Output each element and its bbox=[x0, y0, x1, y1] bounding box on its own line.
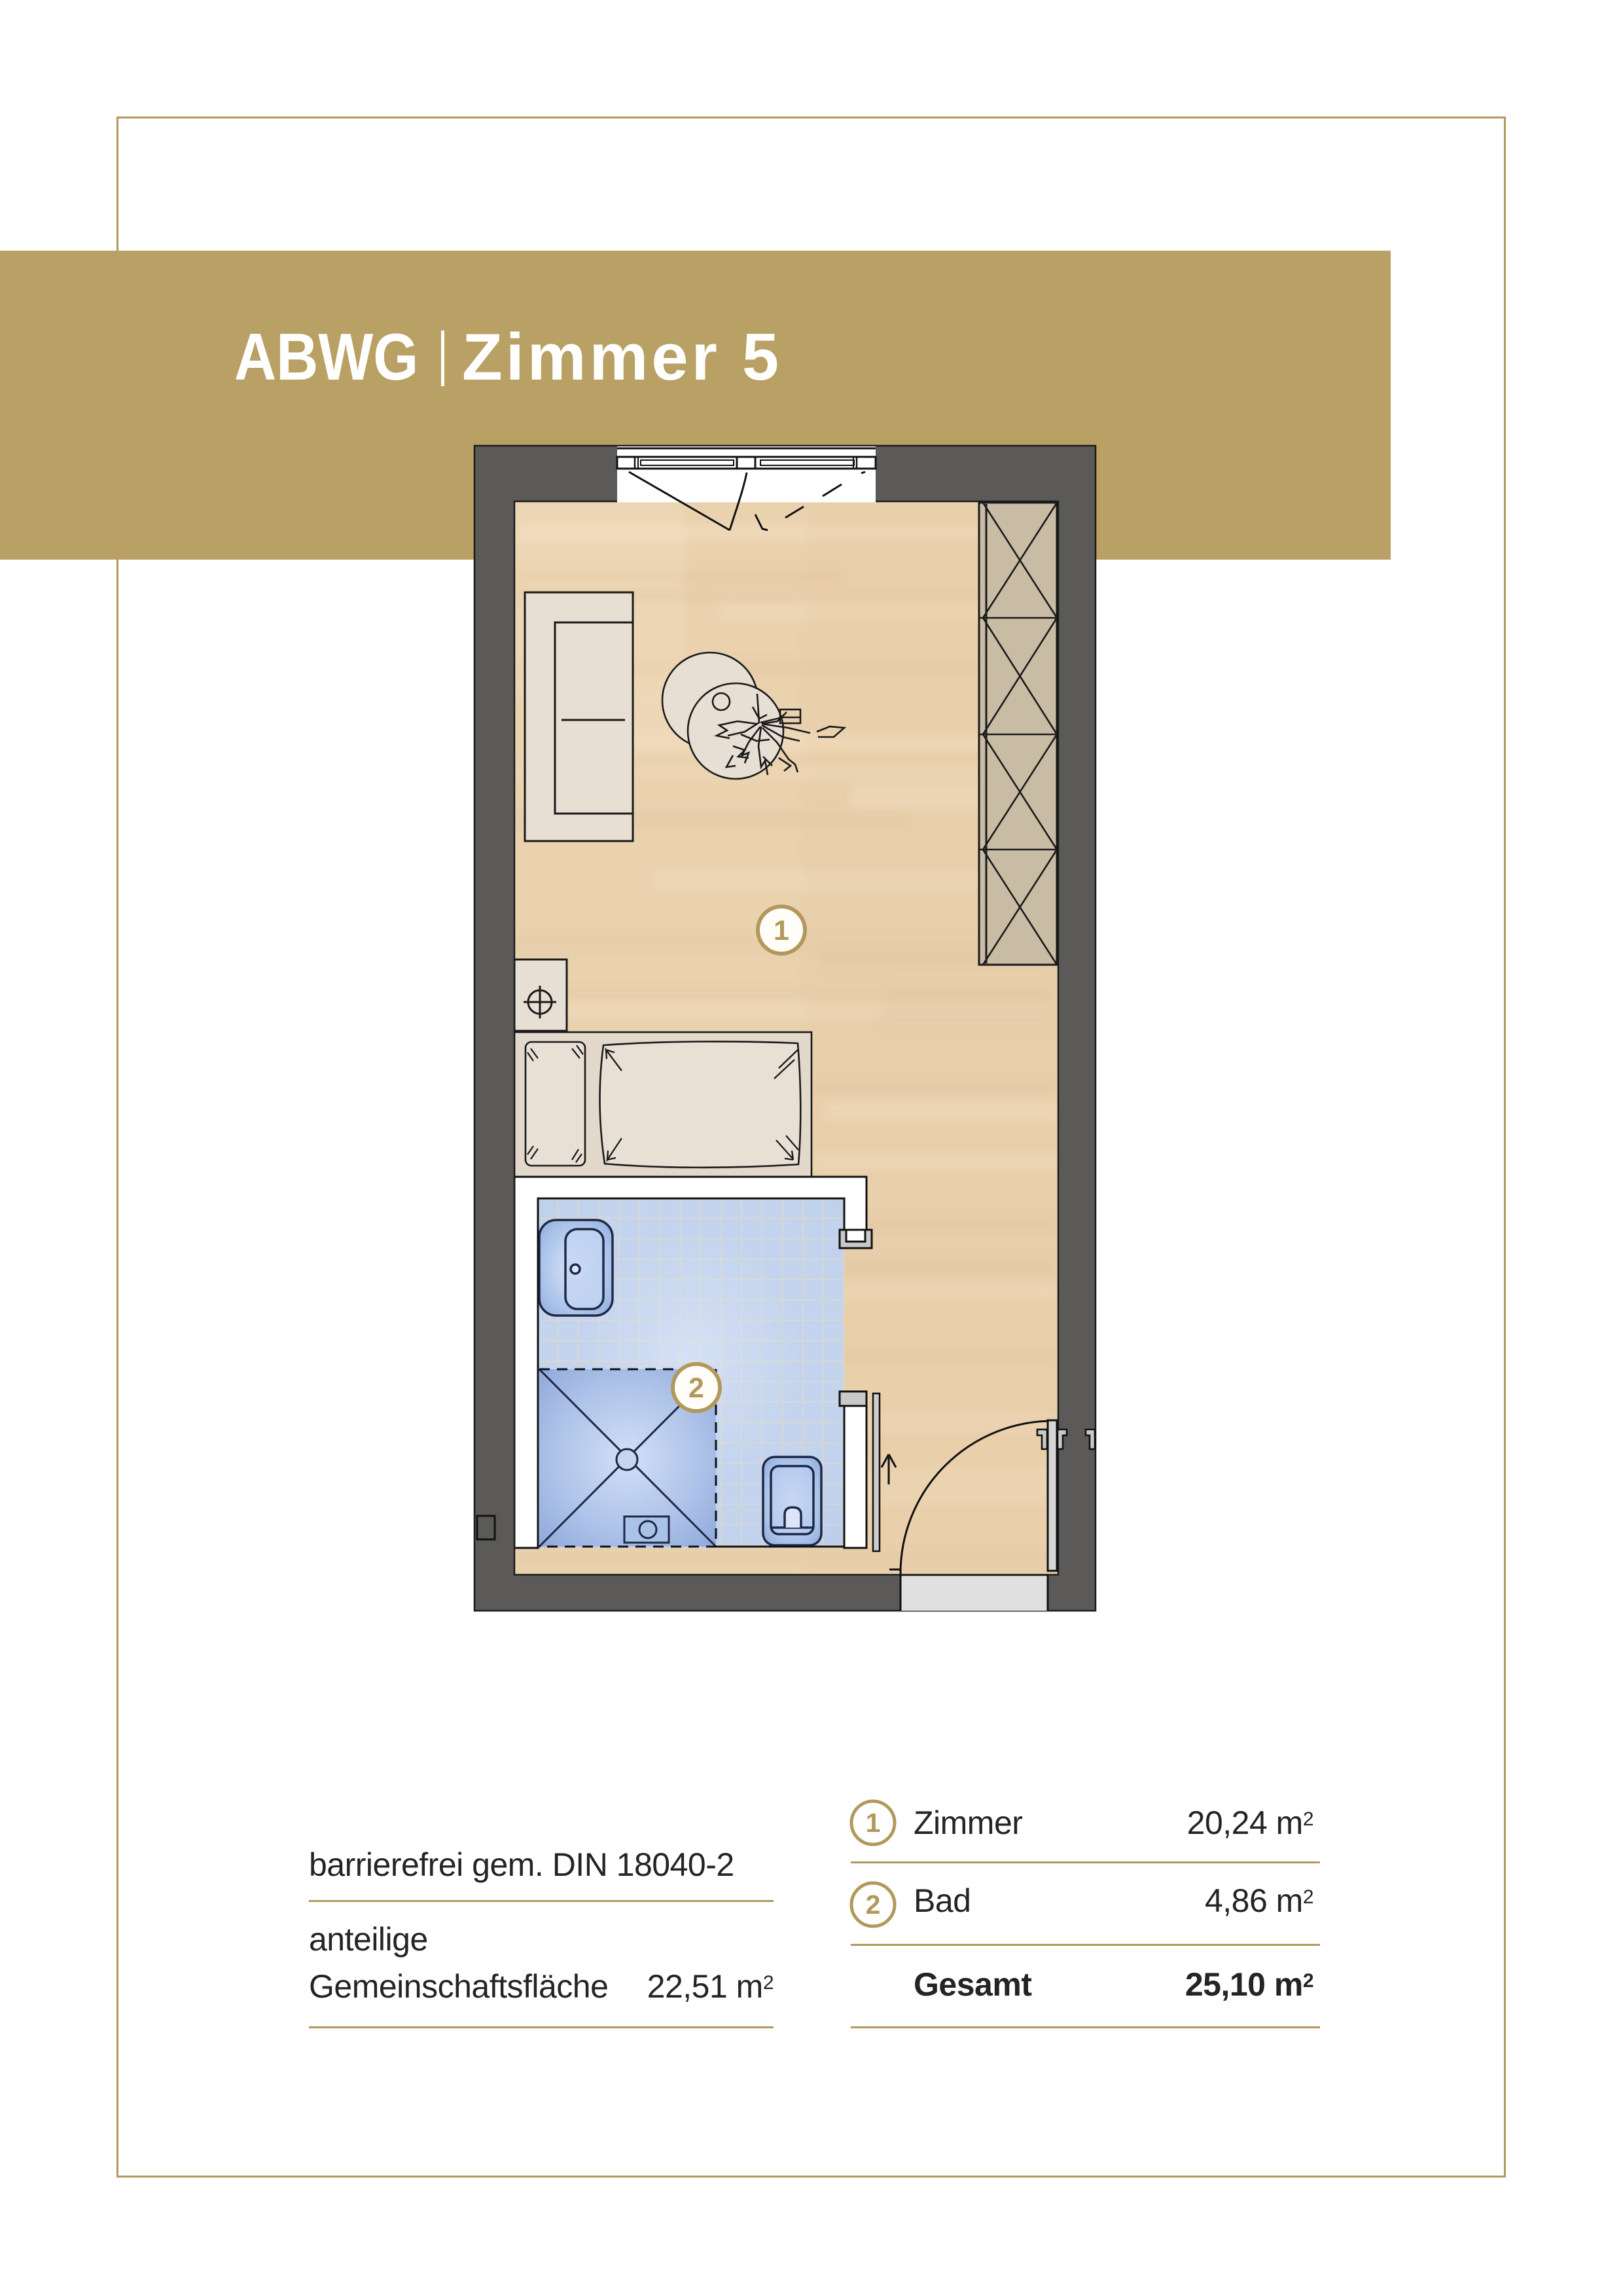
svg-text:1: 1 bbox=[866, 1808, 881, 1838]
svg-text:2: 2 bbox=[866, 1890, 881, 1920]
